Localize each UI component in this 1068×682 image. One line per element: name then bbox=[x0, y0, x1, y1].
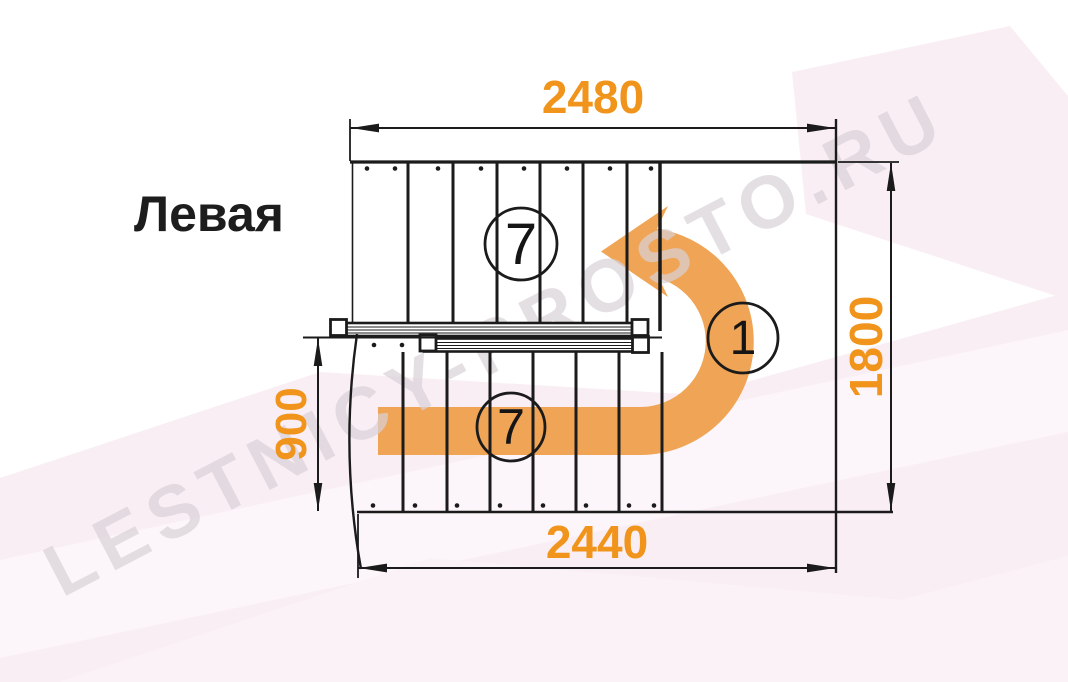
landing-number-label: 1 bbox=[713, 312, 773, 364]
newel-post bbox=[633, 337, 649, 353]
upper-railing bbox=[331, 320, 649, 337]
dimension-top-2480 bbox=[350, 119, 836, 161]
staircase-plan-page: LESTNICY-PROSTO.RU bbox=[0, 0, 1068, 682]
dimension-label-right-height: 1800 bbox=[843, 267, 889, 427]
dimension-label-left-height: 900 bbox=[270, 344, 314, 504]
top-flight-step-count: 7 bbox=[491, 212, 551, 276]
bottom-flight-step-count: 7 bbox=[481, 399, 541, 455]
dimension-label-top-width: 2480 bbox=[513, 74, 673, 120]
dimension-label-bottom-width: 2440 bbox=[517, 519, 677, 565]
newel-post bbox=[331, 320, 347, 336]
newel-post bbox=[632, 320, 648, 336]
plan-title: Левая bbox=[114, 187, 304, 241]
